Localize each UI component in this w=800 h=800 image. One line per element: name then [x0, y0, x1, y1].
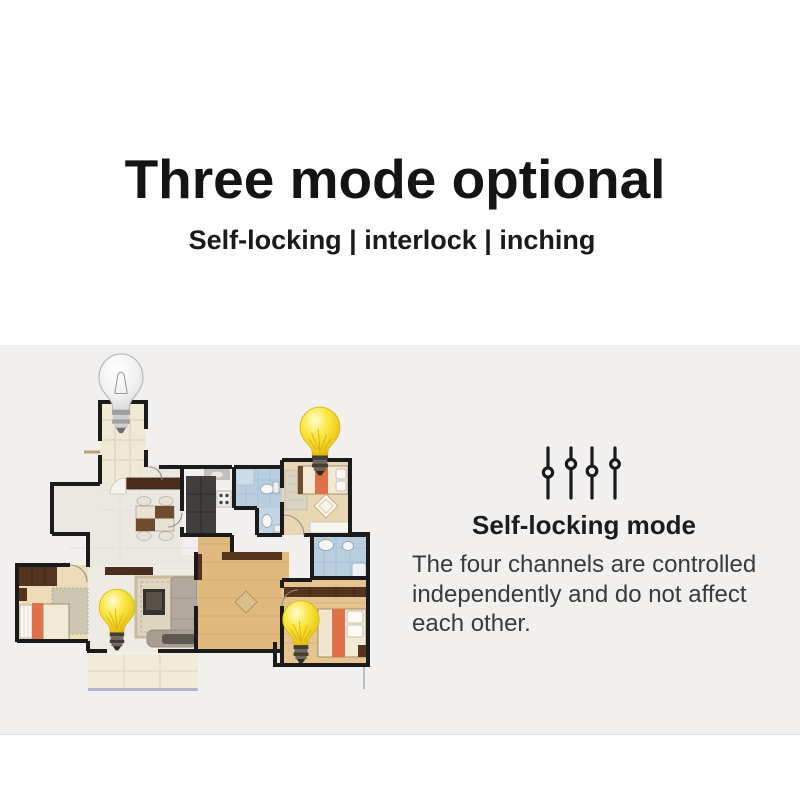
slider-knob-4	[611, 460, 620, 469]
slider-knob-1	[543, 468, 552, 477]
stove	[217, 491, 231, 507]
mode-panel: Self-locking mode The four channels are …	[400, 443, 780, 639]
page-subtitle: Self-locking | interlock | inching	[0, 224, 784, 256]
floor-plan-illustration	[10, 348, 400, 713]
mode-heading: Self-locking mode	[400, 509, 768, 541]
balcony-trim	[88, 688, 198, 691]
mode-description-line: each other.	[412, 609, 780, 639]
slider-knob-3	[587, 466, 597, 476]
mode-description-line: independently and do not affect	[412, 580, 780, 610]
mode-description-line: The four channels are controlled	[412, 550, 780, 580]
slider-knob-2	[566, 459, 575, 468]
product-marketing-image: Three mode optional Self-locking | inter…	[0, 0, 800, 800]
page-title: Three mode optional	[0, 148, 790, 210]
channel-sliders-icon	[536, 443, 628, 503]
mode-description: The four channels are controlled indepen…	[400, 550, 780, 639]
